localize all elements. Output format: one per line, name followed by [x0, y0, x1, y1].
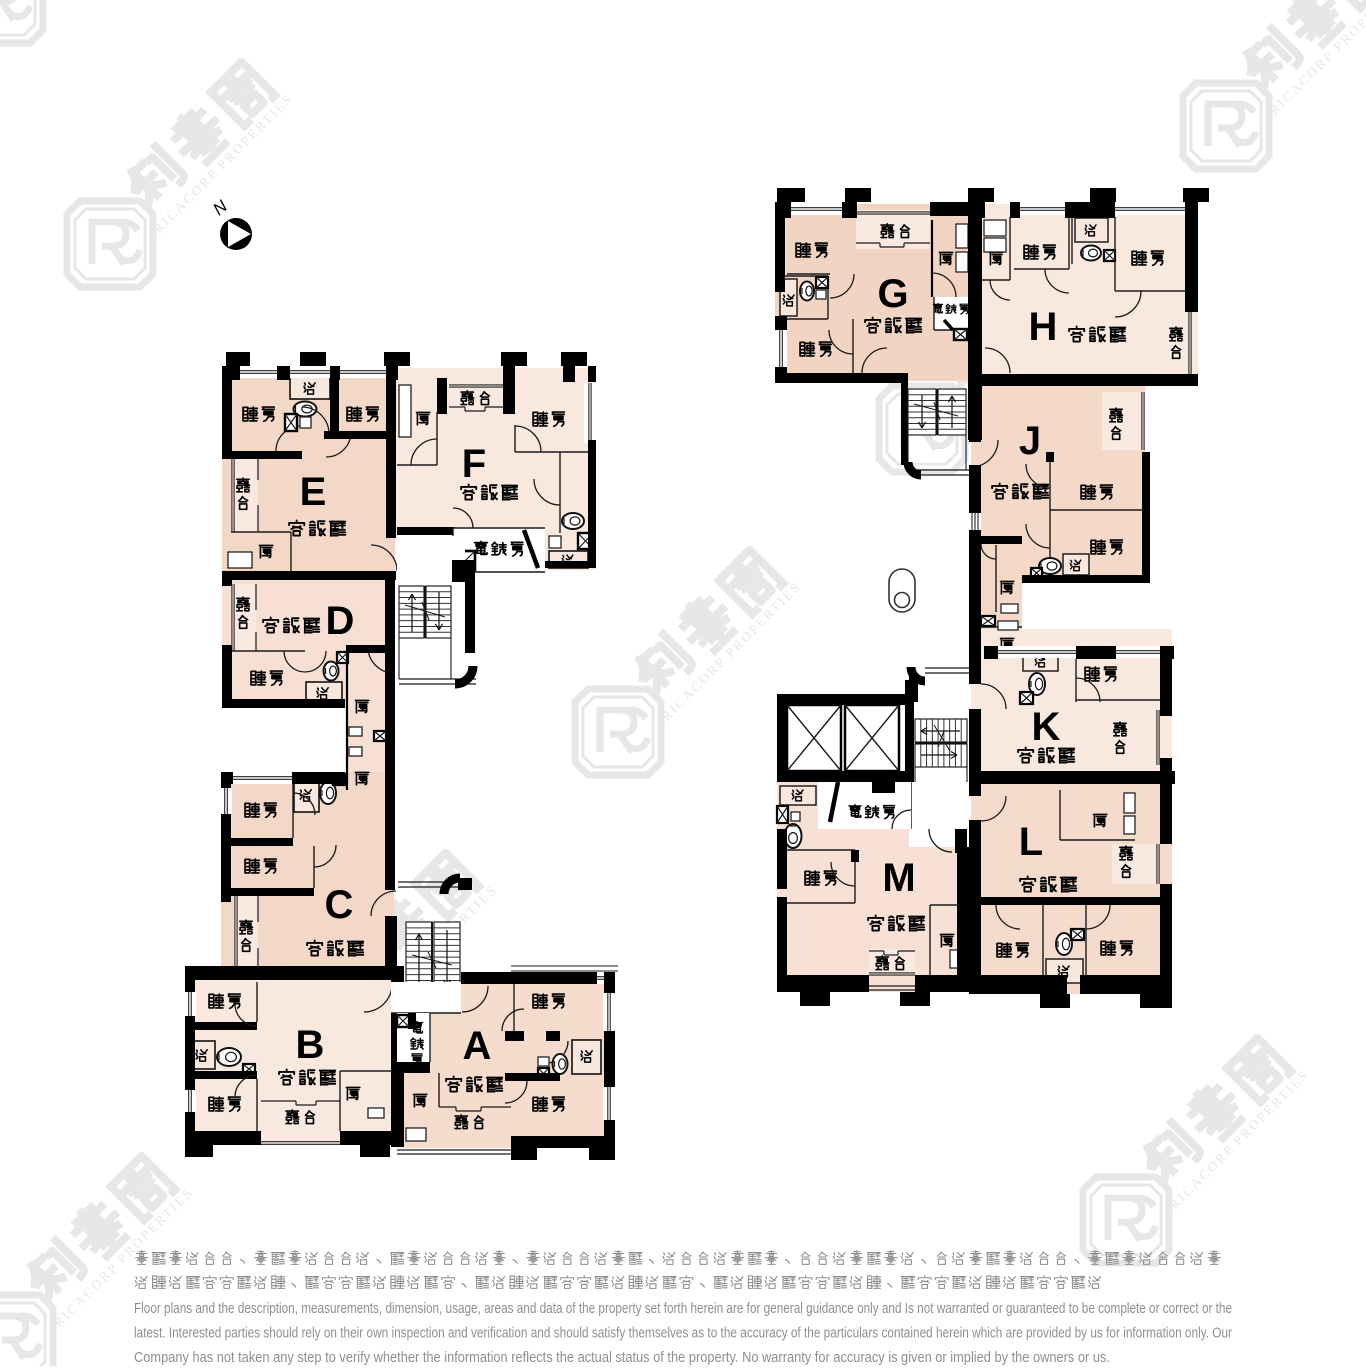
svg-text:J: J	[1019, 419, 1041, 463]
svg-text:M: M	[882, 856, 915, 900]
svg-text:G: G	[877, 272, 908, 316]
svg-text:E: E	[300, 470, 327, 514]
svg-text:Company has not taken any step: Company has not taken any step to verify…	[134, 1350, 1110, 1366]
svg-text:K: K	[1032, 705, 1061, 749]
svg-text:Floor plans and the descriptio: Floor plans and the description, measure…	[134, 1301, 1232, 1317]
svg-text:L: L	[1019, 820, 1043, 864]
svg-text:D: D	[326, 599, 355, 643]
svg-text:latest. Interested parties sho: latest. Interested parties should rely o…	[134, 1326, 1232, 1342]
svg-text:A: A	[463, 1024, 492, 1068]
svg-text:H: H	[1029, 305, 1058, 349]
svg-text:C: C	[325, 883, 354, 927]
svg-text:B: B	[296, 1023, 325, 1067]
svg-text:F: F	[462, 442, 486, 486]
